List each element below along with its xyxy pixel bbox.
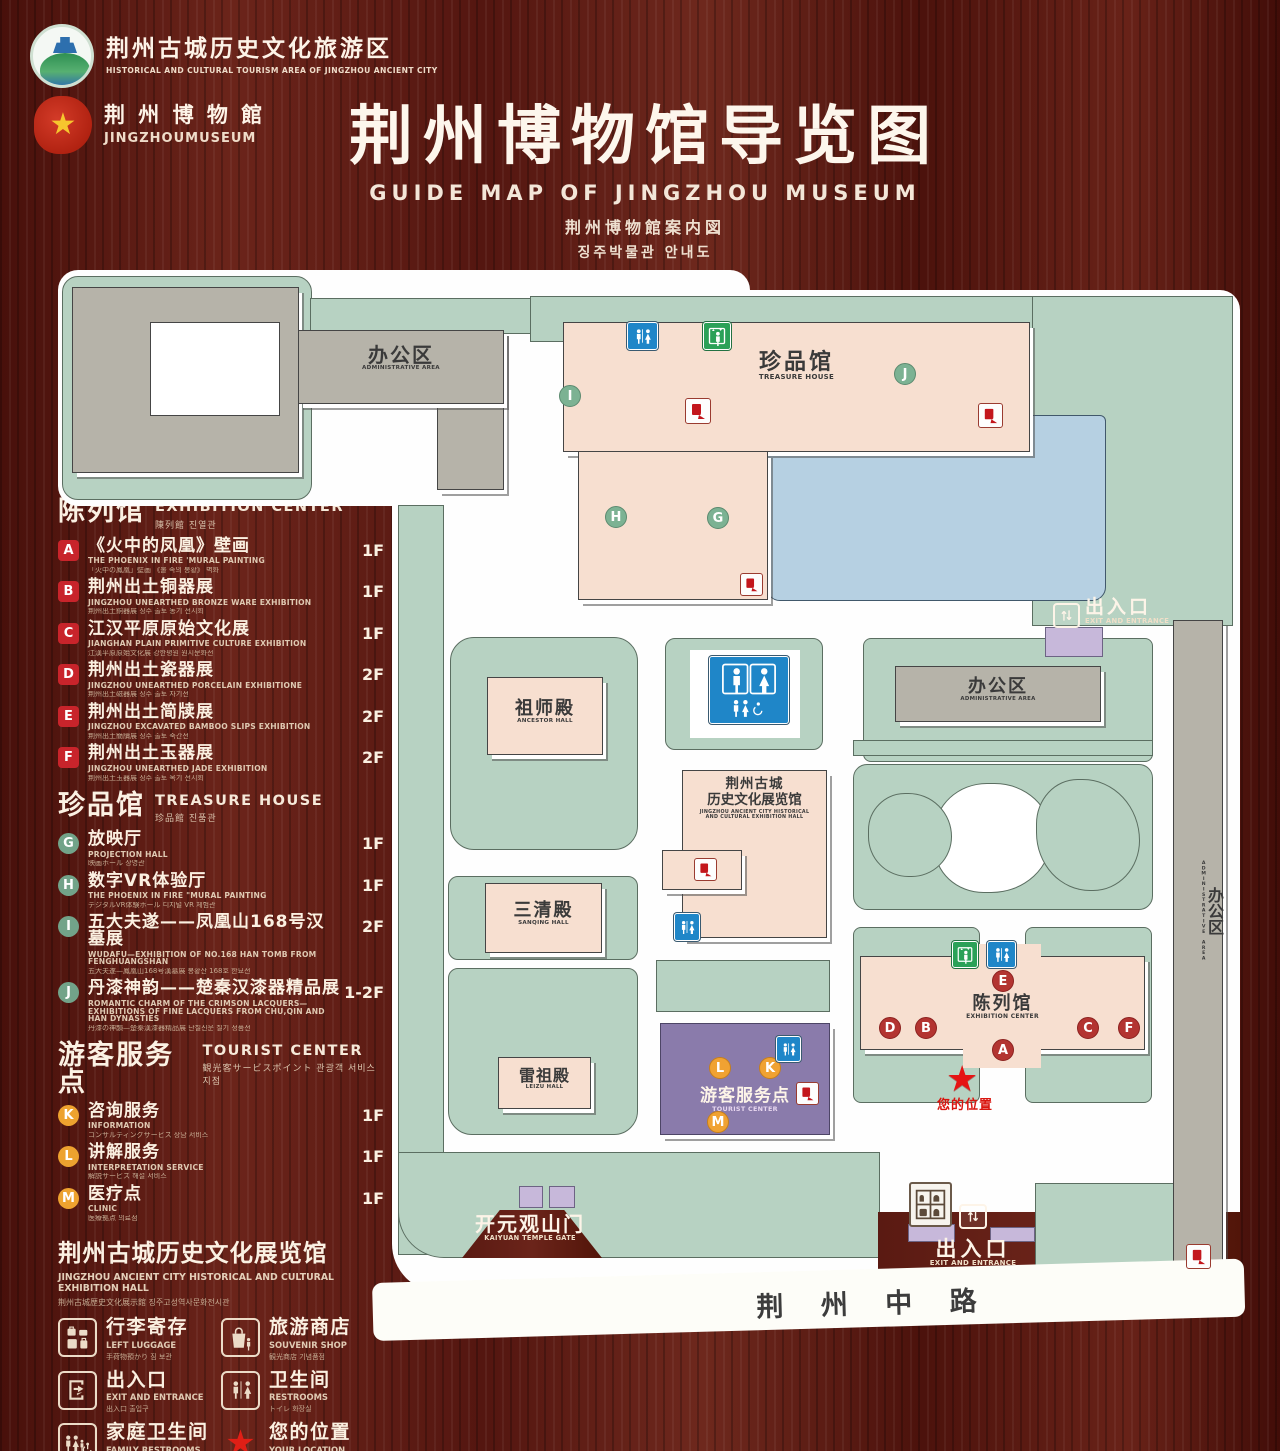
entrance-building-top [1045,627,1103,657]
legend-icon-item-left-luggage: 行李寄存 LEFT LUGGAGE 手荷物預かり 짐 보관 [58,1318,221,1362]
leizu-label: 雷祖殿 LEIZU HALL [499,1068,590,1090]
legend-item-floor: 1F [342,1186,384,1208]
legend-badge-A: A [58,540,79,561]
legend-icon-item-exit-entrance: 出入口 EXIT AND ENTRANCE 出入口 출입구 [58,1371,221,1415]
legend-item-title: 咨询服务 [88,1103,342,1120]
icon-label: 旅游商店 [269,1318,351,1337]
legend-item-C: C 江汉平原原始文化展 JIANGHAN PLAIN PRIMITIVE CUL… [58,621,384,657]
map-badge-E: E [992,970,1014,992]
legend-item-en: WUDAFU—EXHIBITION OF NO.168 HAN TOMB FRO… [88,951,342,966]
museum-logo-subtitle: JINGZHOUMUSEUM [104,131,265,146]
map-badge-I: I [559,385,581,407]
legend-item-B: B 荆州出土铜器展 JINGZHOU UNEARTHED BRONZE WARE… [58,579,384,615]
legend-badge-M: M [58,1188,79,1209]
legend-item-sub: 荆州出土玉器展 징주 출토 옥기 전시회 [88,775,342,782]
legend-badge-D: D [58,664,79,685]
building-sanqing-hall: 三清殿 SANQING HALL [485,883,602,953]
legend-item-I: I 五大夫遂——凤凰山168号汉墓展 WUDAFU—EXHIBITION OF … [58,914,384,975]
hall-note-title: 荆州古城历史文化展览馆 [58,1234,384,1268]
exhibition-label: 陈列馆 EXHIBITION CENTER [930,995,1075,1020]
legend-item-M: M 医疗点 CLINIC 医療拠点 의료점 1F [58,1186,384,1222]
legend-item-sub: 五大夫遂—鳳凰山168号漢墓展 봉황산 168호 한묘전 [88,968,342,975]
legend-item-en: JINGZHOU UNEARTHED JADE EXHIBITION [88,765,342,773]
red-sign-icon [694,858,717,881]
legend-badge-H: H [58,875,79,896]
legend-sidebar: 陈列馆 EXHIBITION CENTER陳列館 진열관A 《火中的凤凰》壁画 … [58,498,384,1451]
legend-item-H: H 数字VR体验厅 THE PHOENIX IN FIRE "MURAL PAI… [58,873,384,909]
icon-label-sub: 手荷物預かり 짐 보관 [106,1352,188,1362]
legend-badge-G: G [58,833,79,854]
zone-history-lower [656,960,830,1012]
legend-item-L: L 讲解服务 INTERPRETATION SERVICE 解説サービス 해설 … [58,1144,384,1180]
left-luggage-stand-icon [909,1182,952,1227]
admin-side-label: 办公区 ADMINISTRATIVE AREA [1174,861,1222,962]
left-luggage-icon [58,1318,97,1357]
section-title-sub: 珍品館 진품관 [155,811,323,824]
legend-item-title: 五大夫遂——凤凰山168号汉墓展 [88,914,342,948]
legend-item-title: 数字VR体验厅 [88,873,342,890]
map-badge-J: J [894,363,916,385]
icon-label-sub: 出入口 출입구 [106,1404,204,1414]
legend-item-sub: コンサルティングサービス 상담 서비스 [88,1132,342,1139]
building-admin-right: 办公区 ADMINISTRATIVE AREA [895,666,1101,722]
icon-label: 卫生间 [269,1371,331,1390]
building-admin-topleft-arm: 办公区 ADMINISTRATIVE AREA [298,330,504,404]
your-location-star-icon: ★ [946,1062,978,1098]
zone-garden [853,764,1153,910]
legend-badge-F: F [58,747,79,768]
legend-item-floor: 1F [342,538,384,560]
red-sign-icon [685,398,711,424]
legend-icon-grid: 行李寄存 LEFT LUGGAGE 手荷物預かり 짐 보관旅游商店 SOUVEN… [58,1318,384,1451]
legend-item-title: 讲解服务 [88,1144,342,1161]
tourism-area-subtitle: HISTORICAL AND CULTURAL TOURISM AREA OF … [106,66,438,75]
legend-item-floor: 2F [342,914,384,936]
map-badge-G: G [707,507,729,529]
legend-item-en: PROJECTION HALL [88,851,342,859]
building-admin-side: 办公区 ADMINISTRATIVE AREA [1173,620,1223,1308]
history-hall-label: 荆州古城 历史文化展览馆 JINGZHOU ANCIENT CITY HISTO… [683,777,826,820]
legend-item-en: CLINIC [88,1205,342,1213]
icon-label-sub: トイレ 화장실 [269,1404,331,1414]
exit-top-label: 出入口 EXIT AND ENTRANCE [1085,598,1215,625]
legend-item-sub: 解説サービス 해설 서비스 [88,1173,342,1180]
exit-bottom-label: 出入口 EXIT AND ENTRANCE [908,1238,1038,1267]
legend-item-floor: 1F [342,579,384,601]
exit-entrance-icon [58,1371,97,1410]
legend-item-D: D 荆州出土瓷器展 JINGZHOU UNEARTHED PORCELAIN E… [58,662,384,698]
section-title-sub: 陳列館 진열관 [155,518,344,531]
zone-leizu-block [448,968,638,1135]
legend-item-title: 荆州出土玉器展 [88,745,342,762]
icon-label: 出入口 [106,1371,204,1390]
tourism-area-title: 荆州古城历史文化旅游区 [106,37,438,62]
building-tourist-center: 游客服务点 TOURIST CENTER [660,1023,830,1135]
red-sign-icon [740,573,763,596]
legend-item-floor: 2F [342,662,384,684]
map-badge-H: H [605,506,627,528]
zone-connector-strip [310,298,566,334]
icon-label-en: RESTROOMS [269,1392,331,1402]
legend-item-A: A 《火中的凤凰》壁画 THE PHOENIX IN FIRE 'MURAL P… [58,538,384,574]
page-title-en: GUIDE MAP OF JINGZHOU MUSEUM [250,181,1040,205]
legend-item-floor: 1F [342,621,384,643]
icon-label: 家庭卫生间 [106,1423,209,1442]
restrooms-icon [987,941,1016,968]
map-badge-F: F [1118,1017,1140,1039]
road-label: 荆 州 中 路 [756,1279,991,1325]
icon-label-sub: 観光商店 기념품점 [269,1352,351,1362]
map-badge-D: D [879,1017,901,1039]
legend-item-floor: 1F [342,831,384,853]
icon-label-en: SOUVENIR SHOP [269,1340,351,1350]
restrooms-icon [221,1371,260,1410]
family-restrooms-icon [58,1423,97,1451]
legend-item-E: E 荆州出土简牍展 JINGZHOU EXCAVATED BAMBOO SLIP… [58,704,384,740]
hall-note-sub: 荆州古城歴史文化展示館 징주고성역사문화전시관 [58,1297,384,1308]
guide-map-poster: 荆州古城历史文化旅游区 HISTORICAL AND CULTURAL TOUR… [0,0,1280,1451]
red-sign-icon [796,1082,819,1105]
legend-item-floor: 1-2F [342,980,384,1002]
legend-icon-item-family-restrooms: 家庭卫生间 FAMILY RESTROOMS 家族用トイレ 가족용 화장실 [58,1423,221,1451]
legend-item-G: G 放映厅 PROJECTION HALL 映画ホール 상영관 1F [58,831,384,867]
restrooms-icon [674,913,700,941]
zone-bottom-right [1035,1183,1177,1271]
legend-section-header-2: 游客服务点 TOURIST CENTER観光客サービスポイント 관광객 서비스 … [58,1042,384,1096]
legend-item-en: INTERPRETATION SERVICE [88,1164,342,1172]
legend-item-floor: 1F [342,1103,384,1125]
legend-item-floor: 2F [342,704,384,726]
legend-item-sub: デジタルVR体験ホール 디지털 VR 체험관 [88,902,342,909]
section-title: 游客服务点 [58,1042,192,1096]
map-badge-L: L [709,1057,731,1079]
icon-label: 您的位置 [269,1423,351,1442]
legend-badge-C: C [58,623,79,644]
icon-label: 行李寄存 [106,1318,188,1337]
legend-item-en: JIANGHAN PLAIN PRIMITIVE CULTURE EXHIBIT… [88,640,342,648]
gate-block-left [519,1186,543,1208]
gate-block-right [549,1186,575,1208]
red-sign-icon [978,403,1003,428]
zone-left-strip [398,505,444,1255]
legend-item-title: 丹漆神韵——楚秦汉漆器精品展 [88,980,342,997]
legend-item-en: INFORMATION [88,1122,342,1130]
admin-courtyard [150,322,280,416]
legend-item-title: 《火中的凤凰》壁画 [88,538,342,555]
exit-entrance-icon [1053,603,1080,628]
map-badge-C: C [1077,1017,1099,1039]
title-block: 荆州博物馆导览图 GUIDE MAP OF JINGZHOU MUSEUM 荆州… [250,104,1040,262]
your-location-icon: ★ [221,1423,260,1451]
restrooms-icon [627,322,658,350]
legend-item-sub: 荆州出土簡牘展 징주 출토 죽간전 [88,733,342,740]
legend-badge-K: K [58,1105,79,1126]
garden-island-left [868,793,952,877]
icon-label-en: EXIT AND ENTRANCE [106,1392,204,1402]
section-title-en: TOURIST CENTER [202,1044,384,1059]
legend-item-title: 放映厅 [88,831,342,848]
zone-bottom-band [398,1152,880,1258]
souvenir-shop-icon [221,1318,260,1357]
icon-label-en: LEFT LUGGAGE [106,1340,188,1350]
legend-item-en: THE PHOENIX IN FIRE "MURAL PAINTING [88,892,342,900]
tourism-area-logo-icon [30,24,94,88]
zone-garden-edge [853,740,1153,756]
admin-right-label: 办公区 ADMINISTRATIVE AREA [896,678,1100,703]
legend-item-sub: 医療拠点 의료점 [88,1215,342,1222]
legend-item-sub: 荆州出土銅器展 징주 출토 동기 전시회 [88,608,342,615]
legend-badge-L: L [58,1146,79,1167]
map-badge-B: B [915,1017,937,1039]
treasure-label: 珍品馆 TREASURE HOUSE [564,351,1029,381]
legend-badge-B: B [58,581,79,602]
building-leizu-hall: 雷祖殿 LEIZU HALL [498,1057,591,1109]
legend-item-sub: 「火中の鳳凰」壁画 《불 속의 봉황》 벽화 [88,567,342,574]
restrooms-icon [776,1036,801,1062]
section-title-sub: 観光客サービスポイント 관광객 서비스 지점 [202,1061,384,1087]
legend-hall-note: 荆州古城历史文化展览馆 JINGZHOU ANCIENT CITY HISTOR… [58,1234,384,1308]
legend-item-floor: 1F [342,873,384,895]
legend-badge-I: I [58,916,79,937]
legend-item-en: ROMANTIC CHARM OF THE CRIMSON LACQUERS—E… [88,1000,342,1023]
legend-icon-item-souvenir-shop: 旅游商店 SOUVENIR SHOP 観光商店 기념품점 [221,1318,384,1362]
legend-item-en: THE PHOENIX IN FIRE 'MURAL PAINTING [88,557,342,565]
red-sign-icon [1186,1244,1211,1269]
museum-logo-icon: ★ [34,96,92,154]
museum-logo-row: ★ 荆 州 博 物 館 JINGZHOUMUSEUM [34,96,265,154]
exit-entrance-icon [959,1204,987,1229]
section-title: 珍品馆 [58,792,145,819]
legend-item-F: F 荆州出土玉器展 JINGZHOU UNEARTHED JADE EXHIBI… [58,745,384,781]
hall-note-en: JINGZHOU ANCIENT CITY HISTORICAL AND CUL… [58,1272,384,1294]
legend-item-K: K 咨询服务 INFORMATION コンサルティングサービス 상담 서비스 1… [58,1103,384,1139]
page-title-kr: 징주박물관 안내도 [250,242,1040,262]
legend-item-sub: 映画ホール 상영관 [88,860,342,867]
museum-logo-title: 荆 州 博 物 館 [104,104,265,127]
legend-item-J: J 丹漆神韵——楚秦汉漆器精品展 ROMANTIC CHARM OF THE C… [58,980,384,1031]
map-badge-A: A [992,1039,1014,1061]
legend-item-en: JINGZHOU UNEARTHED PORCELAIN EXHIBITIONE [88,682,342,690]
building-ancestor-hall: 祖师殿 ANCESTOR HALL [487,677,603,755]
legend-item-title: 荆州出土铜器展 [88,579,342,596]
admin-top-label: 办公区 ADMINISTRATIVE AREA [299,345,503,372]
elevator-icon [703,322,731,350]
legend-item-en: JINGZHOU EXCAVATED BAMBOO SLIPS EXHIBITI… [88,723,342,731]
page-title-jp: 荆州博物館案内図 [250,214,1040,238]
garden-island-right [1036,779,1140,891]
legend-item-en: JINGZHOU UNEARTHED BRONZE WARE EXHIBITIO… [88,599,342,607]
gate-label: 开元观山门 KAIYUAN TEMPLE GATE [440,1214,620,1242]
icon-label-en: FAMILY RESTROOMS [106,1445,209,1451]
your-location-label: 您的位置 [925,1094,1005,1113]
legend-item-title: 江汉平原原始文化展 [88,621,342,638]
legend-item-title: 荆州出土瓷器展 [88,662,342,679]
legend-item-floor: 2F [342,745,384,767]
legend-badge-J: J [58,982,79,1003]
legend-item-sub: 荆州出土磁器展 징주 출토 자기전 [88,691,342,698]
legend-item-title: 医疗点 [88,1186,342,1203]
elevator-icon [952,941,978,968]
legend-item-sub: 丹漆の神韻—楚秦漢漆器精品展 단칠신운 칠기 정품전 [88,1025,342,1032]
legend-section-header-1: 珍品馆 TREASURE HOUSE珍品館 진품관 [58,792,384,825]
page-title: 荆州博物馆导览图 [250,104,1040,171]
sanqing-label: 三清殿 SANQING HALL [486,902,601,927]
legend-icon-item-restrooms: 卫生间 RESTROOMS トイレ 화장실 [221,1371,384,1415]
ancestor-label: 祖师殿 ANCESTOR HALL [488,700,602,725]
section-title-en: TREASURE HOUSE [155,794,323,809]
legend-item-floor: 1F [342,1144,384,1166]
legend-icon-item-your-location: ★您的位置 YOUR LOCATION あなたの位置 당신의 위치 [221,1423,384,1451]
map-badge-M: M [707,1111,729,1133]
legend-item-title: 荆州出土简牍展 [88,704,342,721]
legend-item-sub: 江漢平原原始文化展 강한평원 원시문화전 [88,650,342,657]
tourism-area-logo-row: 荆州古城历史文化旅游区 HISTORICAL AND CULTURAL TOUR… [30,24,438,88]
icon-label-en: YOUR LOCATION [269,1445,351,1451]
family-restrooms-icon [709,656,789,724]
legend-badge-E: E [58,706,79,727]
